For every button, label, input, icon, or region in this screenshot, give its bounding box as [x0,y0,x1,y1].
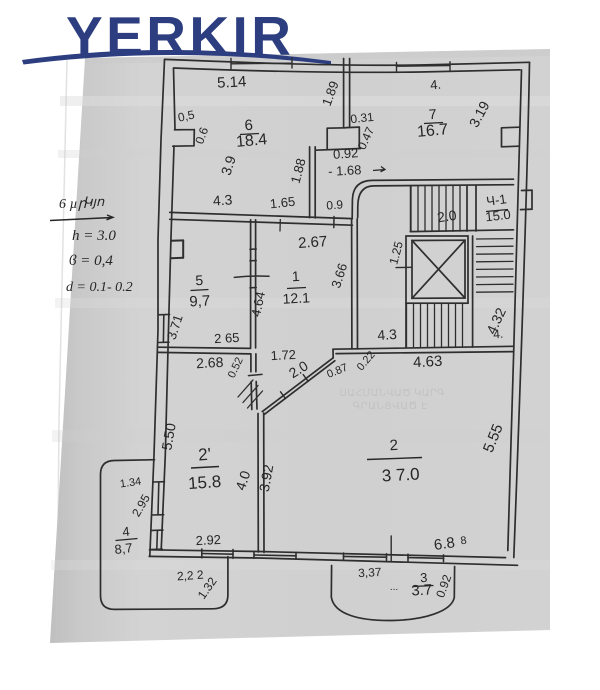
svg-text:ϐ = 0,4: ϐ = 0,4 [69,253,113,269]
svg-text:4.: 4. [430,77,442,93]
svg-text:15.8: 15.8 [187,472,221,493]
svg-text:4: 4 [122,524,131,540]
svg-text:0.92: 0.92 [333,145,359,162]
svg-text:0.31: 0.31 [350,110,375,126]
svg-text:2,2 2: 2,2 2 [176,568,204,584]
svg-text:15.0: 15.0 [485,207,512,225]
svg-text:2': 2' [198,445,212,465]
svg-text:Ч-1: Ч-1 [485,191,507,209]
svg-text:3.7: 3.7 [411,581,433,599]
svg-text:YERKIR: YERKIR [66,5,295,67]
svg-text:8,7: 8,7 [114,540,134,557]
svg-text:3,37: 3,37 [358,565,382,580]
svg-text:12.1: 12.1 [282,289,310,306]
svg-text:18.4: 18.4 [235,131,268,151]
svg-text:6.8: 6.8 [433,534,456,554]
svg-text:Կյո: Կյո [83,194,105,209]
svg-text:h = 3.0: h = 3.0 [72,228,116,244]
svg-text:5.14: 5.14 [217,73,247,92]
svg-text:4.3: 4.3 [377,326,398,343]
svg-text:2 65: 2 65 [214,330,240,346]
svg-text:2: 2 [389,437,398,454]
svg-text:4.: 4. [493,327,504,342]
svg-text:7: 7 [428,106,437,123]
svg-text:d = 0.1- 0.2: d = 0.1- 0.2 [66,280,133,295]
svg-text:2.67: 2.67 [298,233,328,252]
svg-text:ՍԱՀՄԱՆՎԱԾ ԿԱՐԳ: ՍԱՀՄԱՆՎԱԾ ԿԱՐԳ [340,388,445,399]
svg-text:2.0: 2.0 [436,207,458,226]
svg-text:ԳՐԱՆՑՎԱԾ Է: ԳՐԱՆՑՎԱԾ Է [353,401,429,412]
svg-text:9,7: 9,7 [189,292,211,310]
svg-text:2.92: 2.92 [195,532,221,548]
svg-text:1: 1 [291,268,300,284]
svg-text:3 7.0: 3 7.0 [381,465,420,486]
svg-text:0.9: 0.9 [326,197,344,212]
svg-text:5: 5 [195,272,204,288]
svg-text:...: ... [390,582,398,593]
svg-text:16.7: 16.7 [416,121,449,141]
svg-text:4.3: 4.3 [212,191,233,208]
svg-text:2.68: 2.68 [196,354,224,371]
svg-text:4.63: 4.63 [413,353,443,372]
svg-text:1.65: 1.65 [269,194,296,212]
svg-text:- 1.68: - 1.68 [328,162,362,179]
svg-text:1.72: 1.72 [270,347,296,363]
